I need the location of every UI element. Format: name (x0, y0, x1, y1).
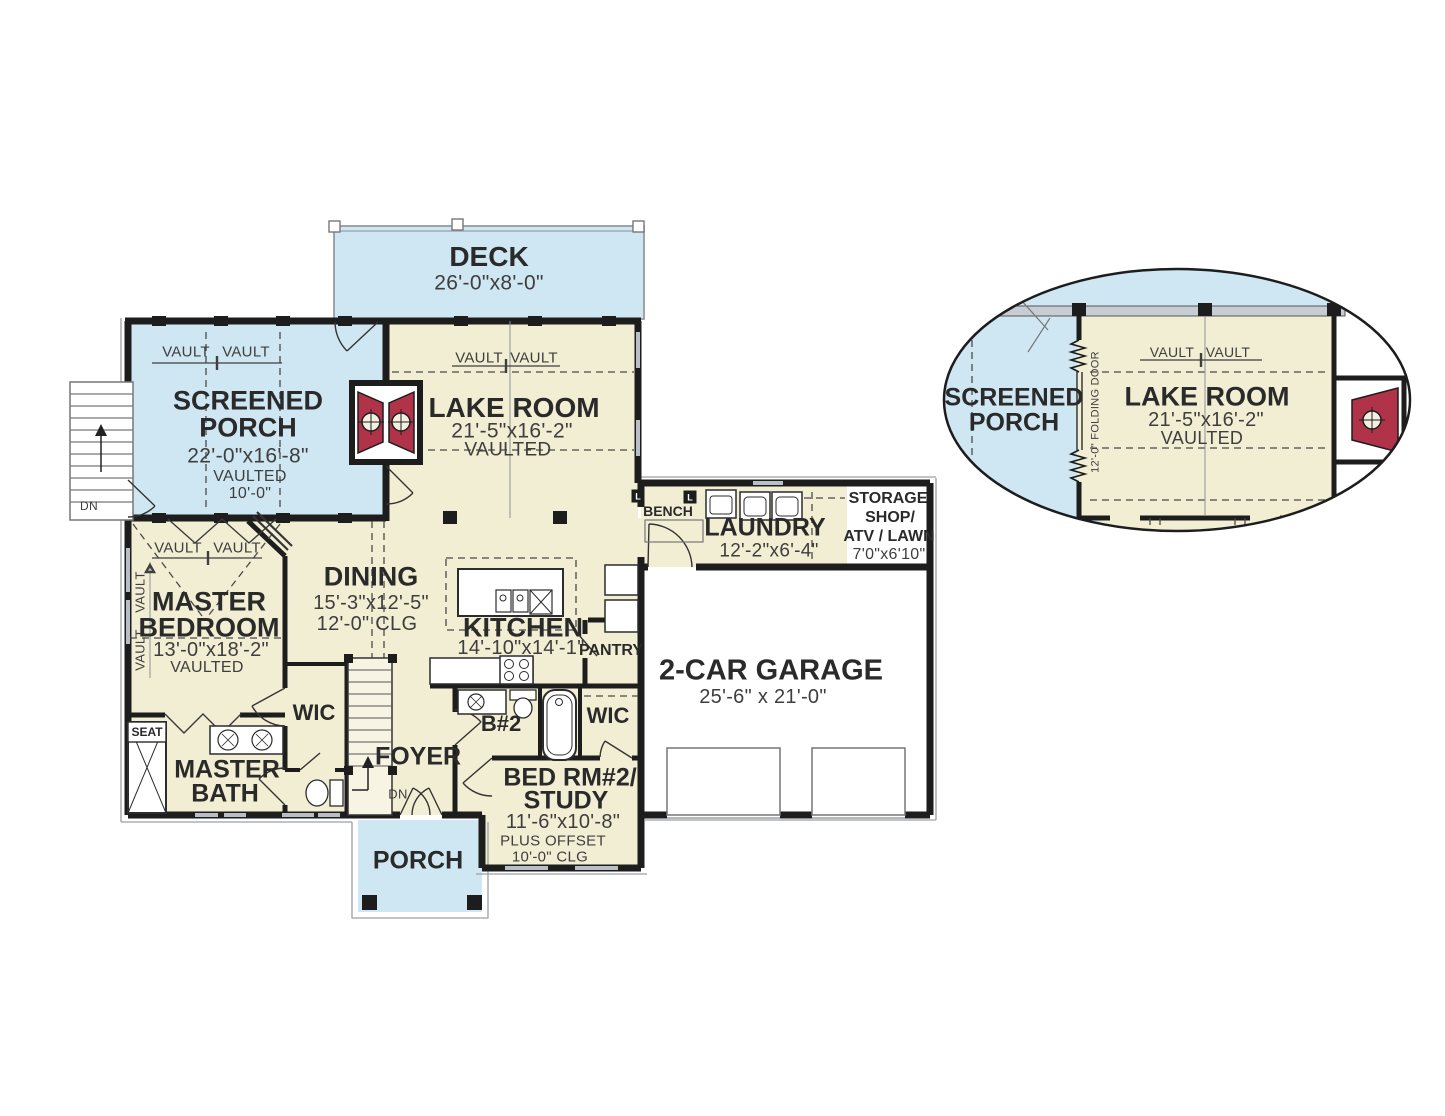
inset-vault-left: VAULT (1150, 345, 1195, 359)
lake-room-dims: 21'-5"x16'-2" (451, 421, 572, 442)
storage-label-1: STORAGE (849, 491, 928, 507)
dining-label: DINING (324, 564, 419, 591)
master-bedroom-label-2: BEDROOM (139, 615, 280, 642)
master-bedroom-label-1: MASTER (152, 589, 266, 616)
laundry-label: LAUNDRY (704, 516, 825, 541)
screened-porch-vaulted: VAULTED (213, 469, 287, 485)
floor-plan-canvas: DECK 26'-0"x8'-0" VAULT VAULT SCREENED P… (0, 0, 1445, 1116)
pantry-label: PANTRY (579, 643, 643, 659)
screened-porch-height: 10'-0" (229, 486, 272, 502)
seat-label: SEAT (131, 726, 162, 738)
kitchen-dims: 14'-10"x14'-1" (457, 638, 584, 658)
screened-porch-label-2: PORCH (199, 415, 297, 442)
lake-room-label: LAKE ROOM (428, 394, 599, 422)
dining-ceiling: 12'-0" CLG (317, 614, 418, 634)
foyer-dn: DN (388, 788, 407, 801)
garage-label: 2-CAR GARAGE (659, 657, 883, 686)
bath2-label: B#2 (481, 713, 521, 735)
master-vault-left: VAULT (154, 541, 202, 556)
master-bedroom-dims: 13'-0"x18'-2" (153, 640, 269, 660)
lake-vault-left: VAULT (455, 351, 503, 366)
wic-master-label: WIC (293, 702, 336, 724)
porch-vault-right: VAULT (222, 345, 270, 360)
inset-screened-porch-2: PORCH (969, 411, 1059, 436)
bed2-label-2: STUDY (524, 789, 609, 814)
inset-lake-room-label: LAKE ROOM (1125, 384, 1290, 411)
exterior-stairs-dn: DN (80, 500, 98, 512)
screened-porch-dims: 22'-0"x16'-8" (187, 446, 308, 467)
laundry-dims: 12'-2"x6'-4" (719, 542, 818, 561)
garage-dims: 25'-6" x 21'-0" (699, 687, 827, 707)
jamb-label-2: L (684, 491, 697, 504)
inset-lake-room-vaulted: VAULTED (1161, 429, 1243, 447)
jamb-label-1: L (632, 490, 645, 503)
lake-room-vaulted: VAULTED (465, 441, 552, 460)
foyer-label: FOYER (375, 745, 461, 770)
inset-vault-right: VAULT (1206, 345, 1251, 359)
wic-bed2-label: WIC (587, 705, 630, 727)
deck-label: DECK (449, 243, 528, 271)
master-bedroom-vaulted: VAULTED (170, 660, 244, 676)
deck-dims: 26'-0"x8'-0" (434, 273, 543, 294)
dining-dims: 15'-3"x12'-5" (313, 593, 429, 613)
inset-screened-porch-1: SCREENED (945, 386, 1084, 411)
master-vault-right: VAULT (213, 541, 261, 556)
lake-vault-right: VAULT (510, 351, 558, 366)
porch-vault-left: VAULT (162, 345, 210, 360)
inset-lake-room-dims: 21'-5"x16'-2" (1148, 410, 1264, 430)
master-vault-vert-1: VAULT (134, 571, 147, 612)
storage-label-2: SHOP/ (865, 510, 915, 526)
storage-dims: 7'0"x6'10" (853, 547, 926, 563)
bed2-ceiling: 10'-0" CLG (512, 850, 588, 865)
bed2-offset: PLUS OFFSET (500, 834, 606, 849)
storage-label-3: ATV / LAWN (843, 529, 934, 545)
screened-porch-label-1: SCREENED (173, 388, 323, 415)
master-bath-label-2: BATH (191, 782, 259, 807)
bench-label: BENCH (643, 504, 693, 518)
bed2-dims: 11'-6"x10'-8" (506, 812, 620, 832)
fireplace (352, 383, 420, 462)
inset-folding-door-label: 12'-0" FOLDING DOOR (1091, 351, 1102, 473)
front-porch-label: PORCH (373, 849, 463, 874)
